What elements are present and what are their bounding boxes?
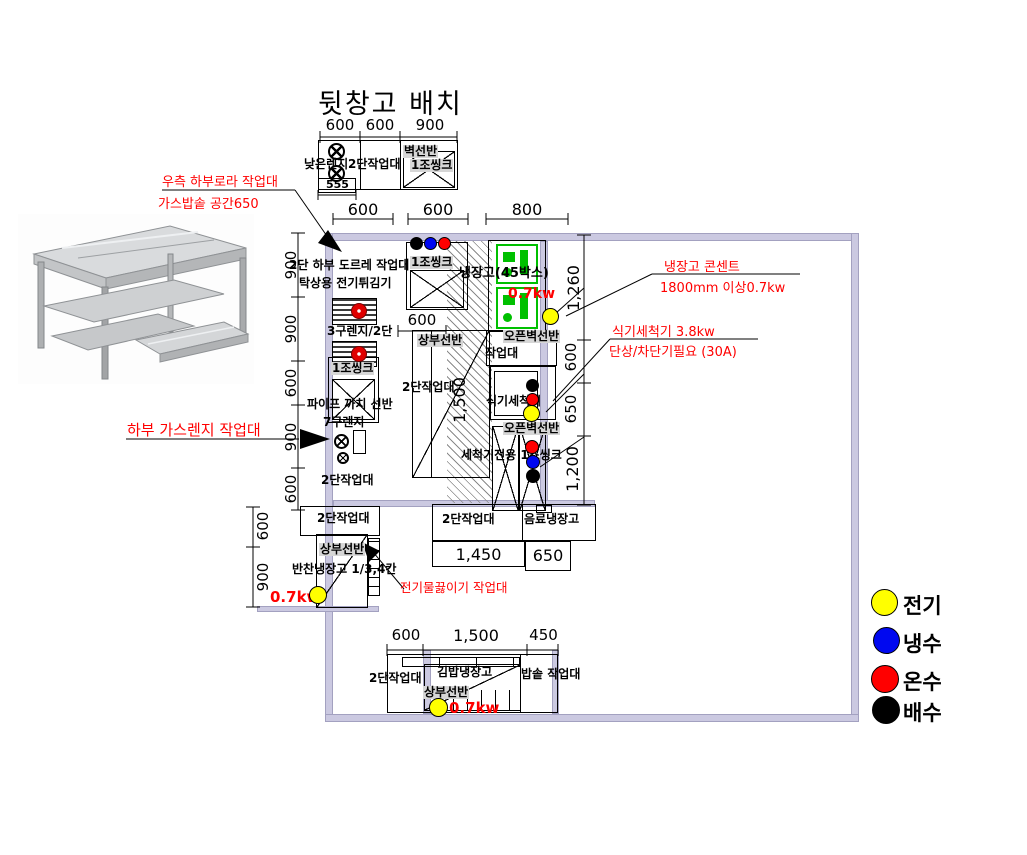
plan-top-dim-1: 600	[333, 200, 393, 219]
bottom-worktable-label-2: 2단작업대	[369, 672, 422, 685]
electric-dot	[523, 405, 540, 422]
annotation-gas-range: 하부 가스렌지 작업대	[127, 419, 261, 440]
plan-left-dim-5: 600	[283, 457, 299, 521]
annex-fridge-label: 반찬냉장고 1/3,4칸	[292, 563, 396, 576]
small-worktable-label: 작업대	[485, 347, 518, 360]
range3-label: 3구렌지/2단	[327, 325, 392, 338]
hot-water-dot	[526, 393, 539, 406]
row-dim-650: 650	[525, 546, 571, 565]
pulley-table-label-1: 2단 하부 도르레 작업대	[289, 259, 409, 272]
sink-symbol	[410, 270, 464, 308]
gas-burner-icon	[337, 452, 349, 464]
pulley-table-label-2: 탁상용 전기튀김기	[299, 277, 392, 290]
annotation-fridge-outlet-2: 1800mm 이상0.7kw	[660, 277, 785, 296]
plan-top-dim-2: 600	[408, 200, 468, 219]
legend-electric-label: 전기	[903, 590, 942, 620]
annotation-fridge-outlet-1: 냉장고 콘센트	[664, 256, 740, 275]
pipe-shelf-label: 파이프 까치 선반	[307, 398, 393, 411]
top-unit-dim-1: 600	[318, 116, 362, 134]
sub-dim-label: 555	[326, 179, 349, 191]
worktable-photo	[18, 214, 254, 384]
annotation-dishwasher-2: 단상/차단기필요 (30A)	[609, 341, 737, 360]
electric-dot	[309, 586, 327, 604]
drain-dot	[410, 237, 423, 250]
burner-icon	[351, 303, 367, 319]
plan-work-dim-1500: 1,500	[452, 368, 468, 432]
top-unit-dim-3: 900	[402, 116, 458, 134]
left-worktable-label: 2단작업대	[321, 474, 374, 487]
left-sink-label: 1조씽크	[331, 362, 374, 375]
annotation-right-table-2: 가스밥솥 공간650	[158, 193, 259, 212]
plan-top-dim-3: 800	[486, 200, 568, 219]
wall-bottom	[325, 714, 859, 722]
burner-icon	[351, 346, 367, 362]
divider-line	[520, 654, 521, 713]
open-shelf-label-2: 오픈벽선반	[503, 422, 560, 435]
bottom-worktable-label: 2단작업대	[442, 513, 495, 526]
row-dim-1450: 1,450	[432, 545, 525, 564]
drawing-canvas: 뒷창고 배치 600 600 900 낮은렌지 2단작업대 벽선반 1조씽크 5…	[0, 0, 1027, 855]
legend-electric-dot	[871, 589, 898, 616]
mid-worktable-label: 2단작업대	[402, 381, 455, 394]
top-unit-sink-label: 1조씽크	[410, 159, 453, 172]
range7-label: 7구렌지	[323, 416, 364, 429]
top-unit-dim-2: 600	[358, 116, 402, 134]
wall-right	[851, 233, 859, 722]
plan-right-dim-1260: 1,260	[566, 256, 582, 320]
legend-drain-label: 배수	[903, 697, 942, 727]
washer-sink-label: 세척기전용 1조씽크	[461, 449, 562, 462]
annotation-dishwasher-1: 식기세척기 3.8kw	[612, 321, 715, 340]
divider-line	[522, 504, 523, 541]
fridge-label: 냉장고(45박스)	[459, 267, 549, 281]
top-worktable-label: 2단작업대	[348, 158, 401, 171]
hot-water-dot	[438, 237, 451, 250]
kimbap-fridge-label: 김밥냉장고	[437, 666, 492, 679]
wall-top	[325, 233, 858, 241]
legend-hot-dot	[871, 665, 899, 693]
legend-cold-label: 냉수	[903, 628, 942, 658]
bottom-dim-2: 1,500	[425, 626, 527, 645]
plan-mid-dim: 600	[397, 311, 447, 329]
drain-dot	[526, 469, 540, 483]
plan-left-dim-1: 900	[283, 233, 299, 297]
bottom-kw-label: 0.7kw	[449, 699, 499, 717]
rice-table-label: 밥솥 작업대	[521, 668, 580, 681]
drink-fridge-label: 음료냉장고	[524, 513, 579, 526]
plan-right-dim-1200: 1,200	[565, 437, 581, 501]
electric-dot	[542, 308, 559, 325]
low-range-label: 낮은렌지	[304, 158, 348, 171]
appliance-box	[353, 430, 366, 454]
bottom-dim-1: 600	[387, 626, 425, 644]
open-shelf-label-1: 오픈벽선반	[503, 330, 560, 343]
fridge-kw-label: 0.7kw	[508, 286, 555, 302]
annex-shelf-label: 상부선반	[319, 543, 365, 556]
top-sink-label: 1조씽크	[410, 256, 453, 269]
hot-water-dot	[525, 440, 539, 454]
electric-dot	[429, 698, 448, 717]
annotation-right-table-1: 우측 하부로라 작업대	[162, 171, 278, 190]
annex-dim-900: 900	[255, 545, 271, 609]
divider-line	[431, 331, 432, 477]
plan-right-dim-650: 650	[563, 377, 579, 441]
drain-dot	[526, 379, 539, 392]
legend-drain-dot	[872, 696, 900, 724]
annotation-kettle: 전기물끓이기 작업대	[400, 577, 507, 596]
wall-shelf-label: 벽선반	[403, 145, 438, 158]
legend-cold-dot	[873, 627, 900, 654]
cold-water-dot	[424, 237, 437, 250]
legend-hot-label: 온수	[903, 666, 942, 696]
gas-burner-icon	[334, 434, 349, 449]
bottom-dim-3: 450	[527, 626, 560, 644]
upper-shelf-label: 상부선반	[417, 334, 463, 347]
door-panel	[492, 426, 519, 511]
cold-water-dot	[526, 455, 540, 469]
annex-worktable-label: 2단작업대	[317, 512, 370, 525]
bottom-shelf-label: 상부선반	[423, 686, 469, 699]
